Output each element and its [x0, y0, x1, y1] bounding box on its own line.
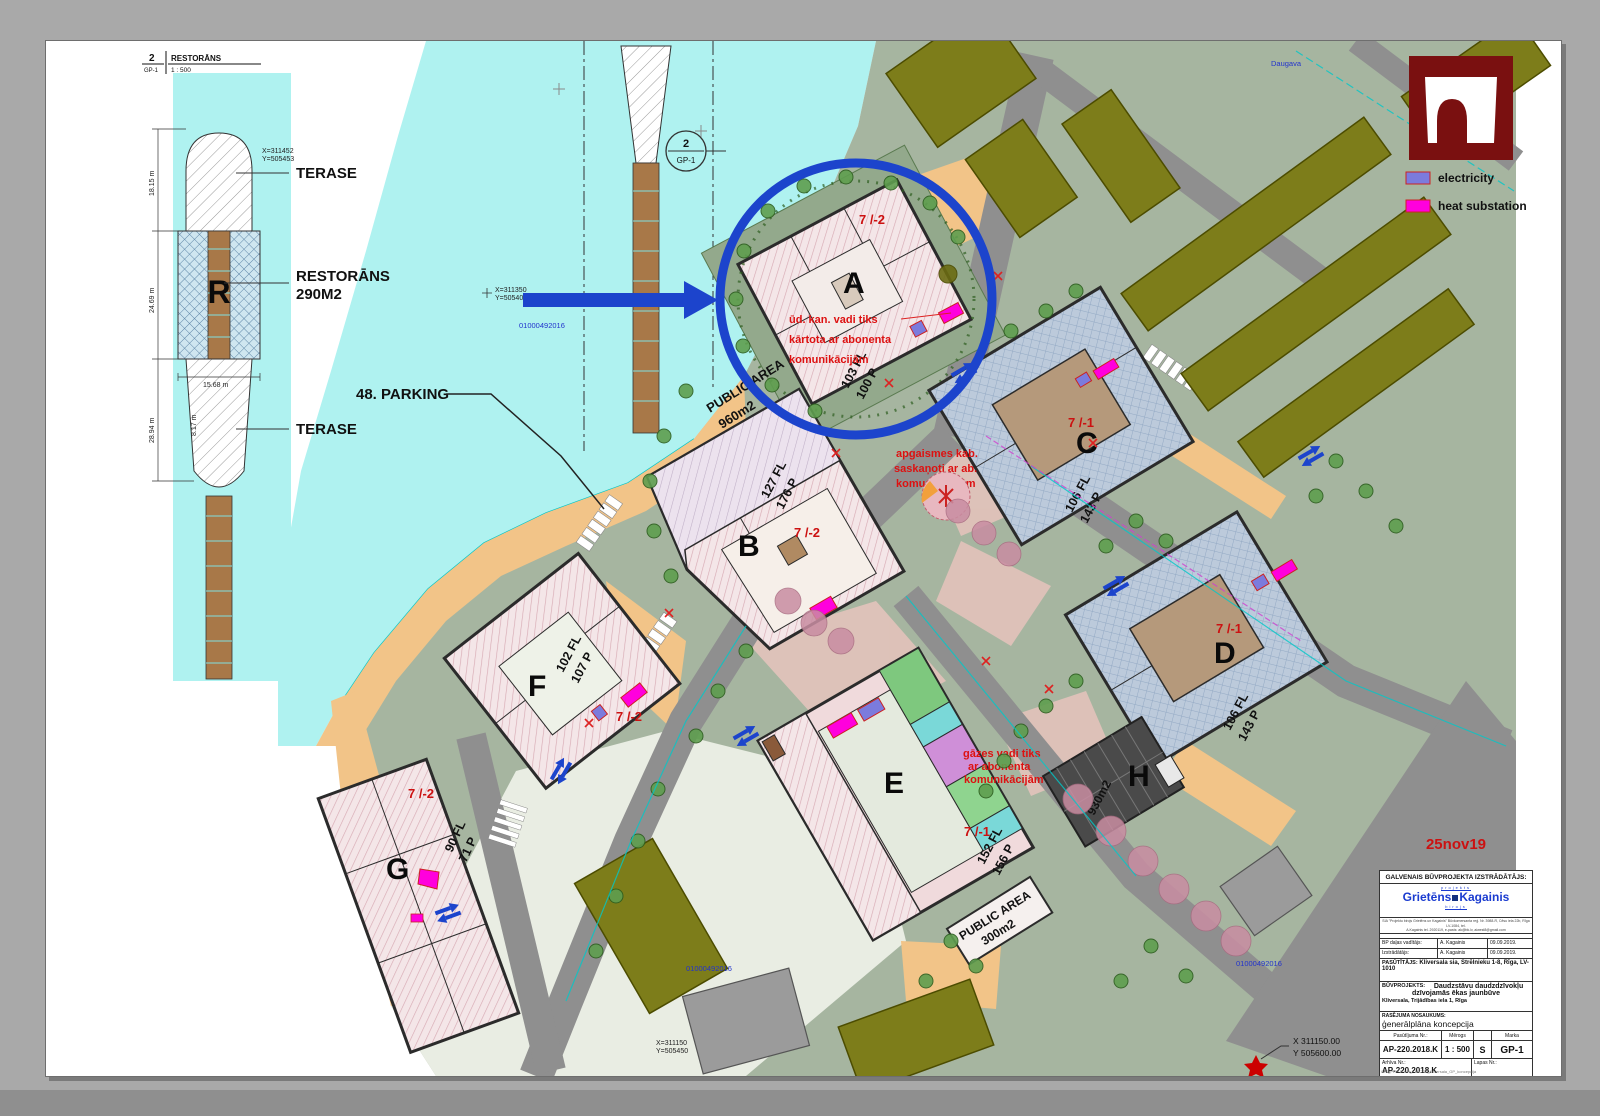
- canvas-background: 2 GP-1 RESTORĀNS 1 : 500: [0, 0, 1600, 1116]
- corner-coord-x: X 311150.00: [1293, 1036, 1340, 1046]
- legend-electricity: electricity: [1406, 171, 1494, 185]
- detail-r-label: R: [207, 274, 230, 310]
- building-f-zone: 7 /-2: [616, 709, 642, 724]
- building-h-label: H: [1128, 760, 1150, 793]
- river-label: Daugava: [1271, 59, 1302, 68]
- label-terase-bottom: TERASE: [296, 421, 357, 438]
- building-c-zone: 7 /-1: [1068, 415, 1094, 430]
- fineprint-line1: SIA "Projektu birojs Grietēns un Kagaini…: [1382, 919, 1530, 928]
- titleblock-logo: projekts GrietēnsKagainis birojs: [1380, 884, 1532, 918]
- scale-value: 1 : 500: [1442, 1041, 1474, 1058]
- detail-callout: 2 GP-1 RESTORĀNS 1 : 500: [142, 51, 261, 74]
- section-marker-sheet: GP-1: [677, 156, 696, 165]
- row2-name: A. Kagainis: [1438, 949, 1488, 958]
- date-stamp: 25nov19: [1401, 836, 1511, 853]
- building-a-label: A: [843, 267, 865, 300]
- coord-b-y: Y=505450: [656, 1048, 688, 1055]
- row2-date: 09.09.2019.: [1488, 949, 1532, 958]
- detail-coord-x: X=311452: [262, 148, 294, 155]
- coord-b-x: X=311150: [656, 1040, 687, 1047]
- project-line3: Kliversala, Trijādības iela 1, Rīga: [1382, 998, 1530, 1004]
- note-e-line3: komunikācijām: [964, 774, 1044, 786]
- cadastre-number-2: 01000492016: [686, 964, 732, 973]
- section-marker-number: 2: [683, 138, 689, 150]
- coord-a-x: X=311350: [495, 287, 527, 294]
- legend-heat-substation: heat substation: [1406, 199, 1527, 213]
- building-g-zone: 7 /-2: [408, 786, 434, 801]
- dim-restorans: 24.69 m: [149, 288, 156, 313]
- heat-substation-swatch: [1406, 200, 1430, 212]
- building-b-zone: 7 /-2: [794, 525, 820, 540]
- cadastre-number: 01000492016: [519, 321, 565, 330]
- fineprint-line2: A.Kagainis tel. 2920119, e-pasts: ak@bk.…: [1382, 928, 1530, 933]
- building-g-label: G: [386, 853, 409, 886]
- building-f-label: F: [528, 670, 546, 703]
- title-block: GALVENAIS BŪVPROJEKTA IZSTRĀDĀTĀJS: proj…: [1379, 870, 1533, 1077]
- marka-value: GP-1: [1492, 1041, 1532, 1058]
- logo-bottom-word: birojs: [1445, 904, 1467, 910]
- parking-callout-text: 48. PARKING: [356, 386, 449, 403]
- site-plan-svg: 2 GP-1 RESTORĀNS 1 : 500: [46, 41, 1561, 1076]
- coord-a-y: Y=505400: [495, 295, 527, 302]
- project-line2: dzīvojamās ēkas jaunbūve: [1382, 990, 1530, 997]
- cadastre-number-3: 01000492016: [1236, 959, 1282, 968]
- note-c-line2: saskaņoti ar ab.: [894, 463, 977, 475]
- dim-terase-top: 18.15 m: [149, 171, 156, 196]
- legend-electricity-label: electricity: [1438, 171, 1494, 185]
- detail-callout-number: 2: [149, 53, 155, 64]
- detail-callout-sheet: GP-1: [144, 68, 159, 74]
- row1-name: A. Kagainis: [1438, 939, 1488, 948]
- logo-square-icon: [1452, 895, 1458, 901]
- titleblock-project: BŪVPROJEKTS: Daudzstāvu daudzdzīvokļu dz…: [1380, 982, 1532, 1012]
- dim-terase-bottom: 28.94 m: [149, 418, 156, 443]
- note-a-line2: kārtota ar abonenta: [789, 334, 892, 346]
- titleblock-drawing-name: RASĒJUMA NOSAUKUMS: ģenerālplāna koncepc…: [1380, 1012, 1532, 1031]
- titleblock-number-headers: Pasūtījuma Nr.: Mērogs Marka: [1380, 1031, 1532, 1041]
- titleblock-row-manager: BP daļas vadītājs: A. Kagainis 09.09.201…: [1380, 939, 1532, 949]
- drawing-sheet: 2 GP-1 RESTORĀNS 1 : 500: [45, 40, 1562, 1077]
- building-e-label: E: [884, 767, 904, 800]
- note-a-line3: komunikācijām: [789, 354, 869, 366]
- titleblock-archive: Arhīva Nr.: AP-220.2018.K Lapas Nr.:: [1380, 1059, 1532, 1077]
- logo-name-1: Grietēns: [1403, 890, 1452, 904]
- row2-label: Izstrādātājs:: [1380, 949, 1438, 958]
- electricity-swatch: [1406, 172, 1430, 184]
- stage-value: S: [1474, 1041, 1492, 1058]
- logo-name-2: Kagainis: [1459, 890, 1509, 904]
- label-restorans-area: 290M2: [296, 286, 342, 303]
- drawing-value: ģenerālplāna koncepcija: [1382, 1019, 1530, 1029]
- detail-coord-y: Y=505453: [262, 156, 294, 163]
- label-terase-top: TERASE: [296, 165, 357, 182]
- titleblock-fineprint: SIA "Projektu birojs Grietēns un Kagaini…: [1380, 918, 1532, 934]
- dim-width: 15.68 m: [203, 382, 228, 389]
- legend-heat-label: heat substation: [1438, 199, 1527, 213]
- building-a-zone: 7 /-2: [859, 212, 885, 227]
- page-label: Lapas Nr.:: [1474, 1060, 1530, 1066]
- note-c-line1: apgaismes kab.: [896, 448, 978, 460]
- order-label: Pasūtījuma Nr.:: [1380, 1031, 1442, 1040]
- titleblock-header: GALVENAIS BŪVPROJEKTA IZSTRĀDĀTĀJS:: [1380, 871, 1532, 884]
- titleblock-row-author: Izstrādātājs: A. Kagainis 09.09.2019.: [1380, 949, 1532, 959]
- building-b-label: B: [738, 530, 760, 563]
- note-a-line1: ūd. kan. vadi tiks: [789, 314, 878, 326]
- detail-pier-strip: [206, 496, 232, 679]
- marka-label: Marka: [1492, 1031, 1532, 1040]
- dim-small: 8.17 m: [191, 414, 198, 436]
- order-value: AP-220.2018.K: [1380, 1041, 1442, 1058]
- building-d-label: D: [1214, 637, 1236, 670]
- detail-callout-scale: 1 : 500: [171, 67, 191, 74]
- detail-callout-title: RESTORĀNS: [171, 54, 222, 63]
- label-restorans: RESTORĀNS: [296, 268, 390, 285]
- row1-date: 09.09.2019.: [1488, 939, 1532, 948]
- scale-label: Mērogs: [1442, 1031, 1474, 1040]
- titleblock-client: PASŪTĪTĀJS: Kliversala sia, Strēlnieku 1…: [1380, 959, 1532, 982]
- project-label: BŪVPROJEKTS:: [1382, 983, 1425, 989]
- building-d-zone: 7 /-1: [1216, 621, 1242, 636]
- corner-coord-y: Y 505600.00: [1293, 1048, 1341, 1058]
- footer-file-path: GrK_PROJEKTI_KMK220_Kliversala_GP_koncep…: [1381, 1069, 1551, 1074]
- stage-header: [1474, 1031, 1492, 1040]
- titleblock-number-values: AP-220.2018.K 1 : 500 S GP-1: [1380, 1041, 1532, 1059]
- company-logo: [1409, 56, 1513, 160]
- row1-label: BP daļas vadītājs:: [1380, 939, 1438, 948]
- heat-substation-g2: [411, 914, 423, 922]
